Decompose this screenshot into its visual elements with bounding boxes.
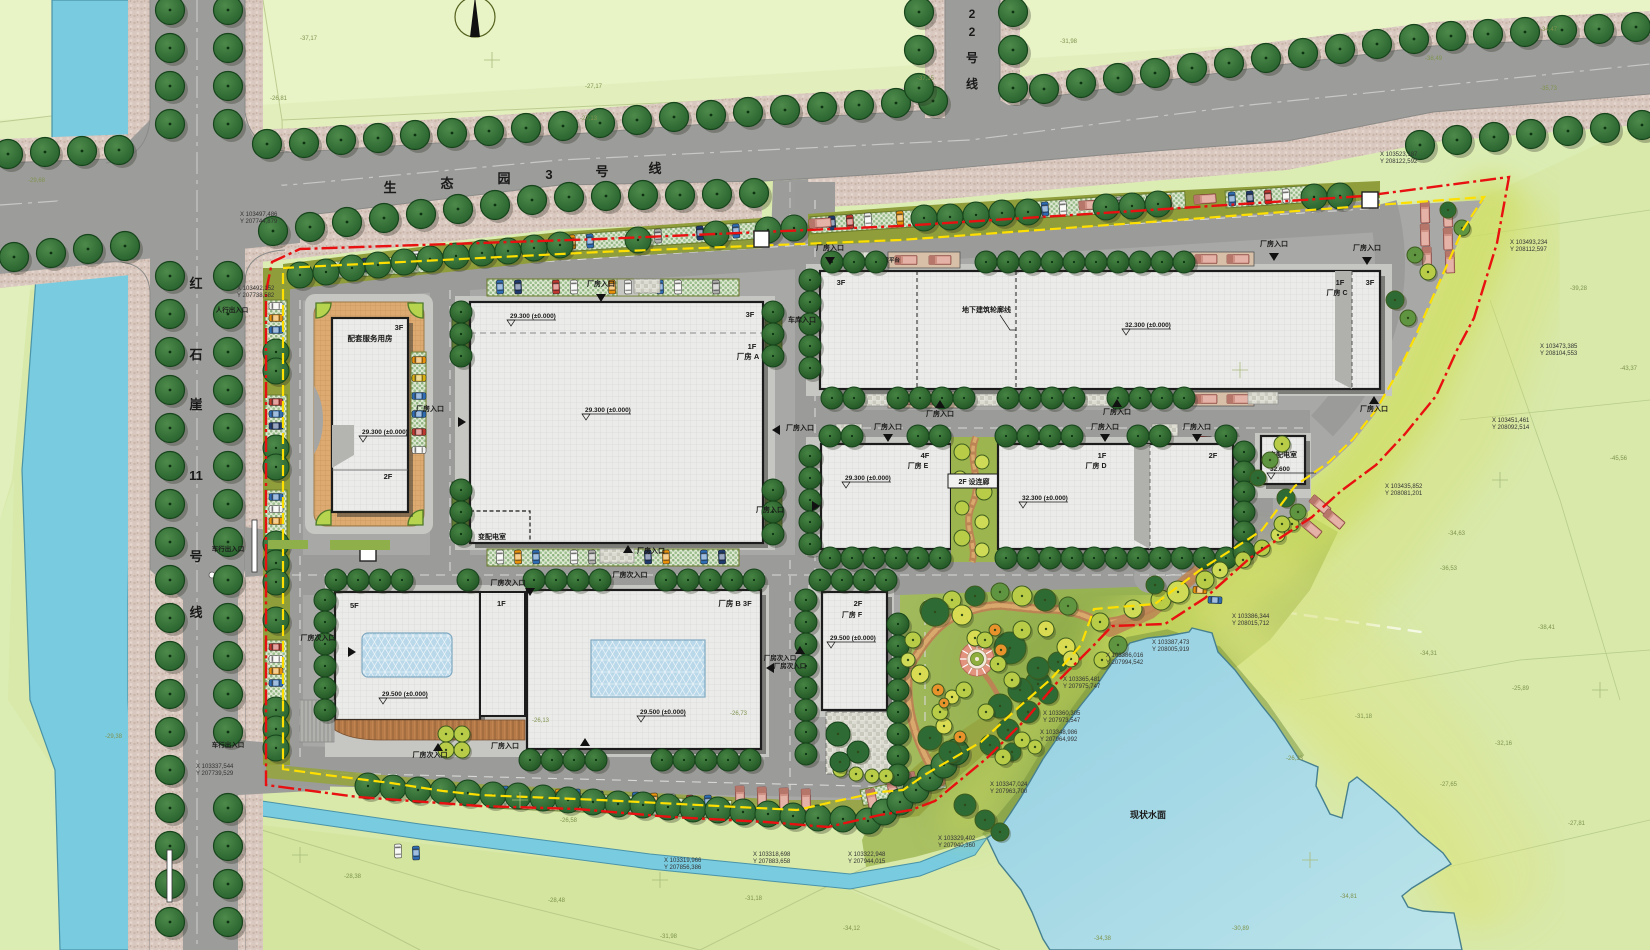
svg-text:厂房次入口: 厂房次入口 — [764, 653, 797, 662]
svg-text:3F: 3F — [1366, 278, 1375, 287]
svg-text:32.300 (±0.000): 32.300 (±0.000) — [1022, 495, 1068, 502]
svg-text:号: 号 — [966, 50, 978, 65]
svg-text:-34,63: -34,63 — [1448, 531, 1466, 537]
svg-text:X 103319,966: X 103319,966 — [664, 858, 702, 864]
svg-text:X 103492,152: X 103492,152 — [237, 286, 275, 292]
svg-text:厂房入口: 厂房入口 — [416, 404, 444, 413]
svg-text:厂房入口: 厂房入口 — [1103, 407, 1131, 416]
svg-text:厂房 D: 厂房 D — [1086, 461, 1107, 470]
svg-text:-30,89: -30,89 — [1232, 926, 1250, 932]
svg-text:Y 207944,015: Y 207944,015 — [848, 859, 886, 865]
svg-text:配套服务用房: 配套服务用房 — [348, 333, 393, 343]
svg-text:变配电室: 变配电室 — [478, 532, 506, 541]
svg-text:厂房入口: 厂房入口 — [756, 505, 784, 514]
svg-text:-26,13: -26,13 — [532, 718, 550, 724]
svg-text:Y 207964,992: Y 207964,992 — [1040, 737, 1078, 743]
svg-text:Y 207973,547: Y 207973,547 — [1043, 718, 1081, 724]
svg-text:厂房入口: 厂房入口 — [637, 546, 665, 555]
svg-text:厂房次入口: 厂房次入口 — [491, 578, 526, 587]
svg-text:-27,17: -27,17 — [585, 84, 603, 90]
svg-text:线: 线 — [966, 76, 978, 91]
svg-text:Y 208005,919: Y 208005,919 — [1152, 647, 1190, 653]
svg-text:-32,16: -32,16 — [1495, 741, 1513, 747]
svg-text:厂房入口: 厂房入口 — [786, 423, 814, 432]
svg-text:号: 号 — [189, 549, 202, 564]
svg-text:X 103497,486: X 103497,486 — [240, 212, 278, 218]
svg-text:5F: 5F — [350, 601, 359, 610]
svg-text:3F: 3F — [746, 310, 755, 319]
svg-text:11: 11 — [189, 468, 203, 483]
svg-text:4F: 4F — [921, 451, 930, 460]
svg-text:Y 208112,597: Y 208112,597 — [1510, 247, 1547, 253]
svg-text:1F: 1F — [1336, 278, 1345, 287]
svg-text:-25,89: -25,89 — [1512, 686, 1530, 692]
svg-text:厂房入口: 厂房入口 — [1183, 422, 1211, 431]
svg-text:厂房次入口: 厂房次入口 — [774, 661, 807, 670]
svg-text:X 103337,544: X 103337,544 — [196, 764, 234, 770]
svg-text:厂房 A: 厂房 A — [737, 351, 760, 361]
svg-text:-31,18: -31,18 — [745, 896, 763, 902]
svg-text:厂房入口: 厂房入口 — [1091, 422, 1119, 431]
svg-text:29.300 (±0.000): 29.300 (±0.000) — [845, 475, 891, 482]
svg-text:-27,81: -27,81 — [1568, 821, 1586, 827]
svg-text:2: 2 — [969, 25, 976, 39]
svg-text:-43,37: -43,37 — [1620, 366, 1638, 372]
svg-text:-39,28: -39,28 — [1570, 286, 1588, 292]
svg-text:生: 生 — [383, 180, 396, 195]
svg-text:X 103365,481: X 103365,481 — [1063, 677, 1101, 683]
svg-text:X 103387,473: X 103387,473 — [1152, 640, 1190, 646]
svg-text:车库入口: 车库入口 — [788, 315, 816, 324]
svg-text:线: 线 — [648, 161, 661, 176]
svg-text:X 103451,461: X 103451,461 — [1492, 418, 1530, 424]
svg-text:厂房 F: 厂房 F — [842, 610, 863, 619]
svg-text:2F: 2F — [384, 472, 393, 481]
svg-text:1F: 1F — [748, 342, 757, 351]
svg-text:车行出入口: 车行出入口 — [212, 544, 245, 553]
svg-text:32.300 (±0.000): 32.300 (±0.000) — [1125, 322, 1171, 329]
svg-text:29.500 (±0.000): 29.500 (±0.000) — [830, 635, 876, 642]
svg-text:厂房次入口: 厂房次入口 — [413, 750, 448, 759]
svg-text:厂房入口: 厂房入口 — [816, 243, 844, 252]
svg-text:3: 3 — [545, 167, 552, 182]
svg-text:-34,47: -34,47 — [1540, 27, 1558, 33]
svg-text:2F 设连廊: 2F 设连廊 — [958, 477, 989, 486]
svg-text:厂房入口: 厂房入口 — [874, 422, 902, 431]
svg-text:X 103360,305: X 103360,305 — [1043, 711, 1081, 717]
svg-text:X 103523,187: X 103523,187 — [1380, 152, 1418, 158]
svg-text:Y 208081,201: Y 208081,201 — [1385, 491, 1423, 497]
svg-text:厂房入口: 厂房入口 — [1353, 243, 1381, 252]
svg-text:X 103348,986: X 103348,986 — [1040, 730, 1078, 736]
svg-text:Y 207883,658: Y 207883,658 — [753, 859, 791, 865]
svg-text:-34,31: -34,31 — [1420, 651, 1438, 657]
svg-text:Y 208092,514: Y 208092,514 — [1492, 425, 1530, 431]
svg-text:X 103473,385: X 103473,385 — [1540, 344, 1578, 350]
svg-text:Y 208104,553: Y 208104,553 — [1540, 351, 1578, 357]
svg-text:2F: 2F — [1209, 451, 1218, 460]
svg-text:红: 红 — [189, 276, 202, 291]
svg-text:车行出入口: 车行出入口 — [212, 740, 245, 749]
svg-text:X 103386,344: X 103386,344 — [1232, 614, 1270, 620]
svg-text:号: 号 — [595, 164, 608, 179]
svg-text:厂房次入口: 厂房次入口 — [613, 570, 648, 579]
svg-text:X 103435,852: X 103435,852 — [1385, 484, 1423, 490]
svg-text:3F: 3F — [395, 323, 404, 332]
svg-text:Y 208122,592: Y 208122,592 — [1380, 159, 1418, 165]
svg-text:Y 207975,747: Y 207975,747 — [1063, 684, 1101, 690]
svg-text:-26,58: -26,58 — [560, 818, 578, 824]
svg-text:Y 207738,582: Y 207738,582 — [237, 293, 275, 299]
svg-text:-36,53: -36,53 — [1440, 566, 1458, 572]
svg-text:29.300 (±0.000): 29.300 (±0.000) — [585, 407, 631, 414]
svg-text:-26,73: -26,73 — [730, 711, 748, 717]
svg-text:X 103386,016: X 103386,016 — [1106, 653, 1144, 659]
svg-text:厂房 B 3F: 厂房 B 3F — [718, 598, 752, 608]
svg-text:X 103347,024: X 103347,024 — [990, 782, 1028, 788]
svg-text:2: 2 — [969, 7, 976, 21]
svg-text:29.300 (±0.000): 29.300 (±0.000) — [362, 429, 408, 436]
svg-text:-28,38: -28,38 — [344, 874, 362, 880]
svg-text:态: 态 — [440, 176, 453, 191]
svg-text:厂房次入口: 厂房次入口 — [301, 633, 336, 642]
svg-text:厂房入口: 厂房入口 — [926, 409, 954, 418]
svg-text:石: 石 — [188, 347, 202, 362]
svg-text:-31,98: -31,98 — [660, 934, 678, 940]
svg-text:X 103322,948: X 103322,948 — [848, 852, 886, 858]
svg-text:Y 207940,360: Y 207940,360 — [938, 843, 976, 849]
svg-text:-34,12: -34,12 — [843, 926, 861, 932]
svg-text:-38,41: -38,41 — [1538, 625, 1556, 631]
svg-text:2F: 2F — [854, 599, 863, 608]
svg-text:-34,81: -34,81 — [1340, 894, 1358, 900]
svg-text:人行出入口: 人行出入口 — [216, 305, 249, 314]
svg-text:-37,15: -37,15 — [917, 76, 935, 82]
svg-text:-37,17: -37,17 — [300, 36, 318, 42]
svg-text:Y 207994,542: Y 207994,542 — [1106, 660, 1144, 666]
svg-text:Y 207739,529: Y 207739,529 — [196, 771, 234, 777]
svg-text:-34,38: -34,38 — [1094, 936, 1112, 942]
svg-text:Y 207856,386: Y 207856,386 — [664, 865, 702, 871]
svg-text:厂房入口: 厂房入口 — [1260, 239, 1288, 248]
svg-text:Y 208015,712: Y 208015,712 — [1232, 621, 1270, 627]
svg-text:-26,33: -26,33 — [1286, 756, 1304, 762]
svg-text:29.300 (±0.000): 29.300 (±0.000) — [510, 313, 556, 320]
svg-text:-29,38: -29,38 — [105, 734, 123, 740]
svg-text:X 103493,234: X 103493,234 — [1510, 240, 1548, 246]
svg-text:厂房 C: 厂房 C — [1327, 288, 1348, 297]
svg-text:Y 207963,700: Y 207963,700 — [990, 789, 1028, 795]
svg-text:-35,73: -35,73 — [1540, 86, 1558, 92]
svg-text:现状水面: 现状水面 — [1130, 809, 1166, 820]
svg-text:1F: 1F — [1098, 451, 1107, 460]
svg-text:-31,18: -31,18 — [1355, 714, 1373, 720]
svg-text:-27,65: -27,65 — [1440, 782, 1458, 788]
svg-text:-31,98: -31,98 — [1060, 39, 1078, 45]
svg-text:崖: 崖 — [189, 397, 202, 412]
svg-text:-38,49: -38,49 — [1425, 56, 1443, 62]
svg-text:-26,81: -26,81 — [270, 96, 288, 102]
svg-text:-28,48: -28,48 — [548, 898, 566, 904]
svg-text:29.500 (±0.000): 29.500 (±0.000) — [382, 691, 428, 698]
svg-text:线: 线 — [189, 605, 202, 620]
svg-text:X 103329,402: X 103329,402 — [938, 836, 976, 842]
svg-text:厂房入口: 厂房入口 — [587, 279, 615, 288]
svg-text:3F: 3F — [837, 278, 846, 287]
svg-text:-29,68: -29,68 — [28, 178, 46, 184]
svg-text:园: 园 — [497, 171, 510, 186]
svg-text:Y 207744,879: Y 207744,879 — [240, 219, 278, 225]
svg-text:1F: 1F — [497, 599, 506, 608]
svg-text:厂房 E: 厂房 E — [908, 461, 929, 470]
svg-text:厂房入口: 厂房入口 — [491, 741, 519, 750]
svg-text:-45,56: -45,56 — [1610, 456, 1628, 462]
svg-text:X 103318,698: X 103318,698 — [753, 852, 791, 858]
svg-text:地下建筑轮廓线: 地下建筑轮廓线 — [962, 305, 1011, 314]
svg-text:29.500 (±0.000): 29.500 (±0.000) — [640, 709, 686, 716]
svg-text:厂房入口: 厂房入口 — [1360, 404, 1388, 413]
svg-text:-27,13: -27,13 — [580, 116, 598, 122]
